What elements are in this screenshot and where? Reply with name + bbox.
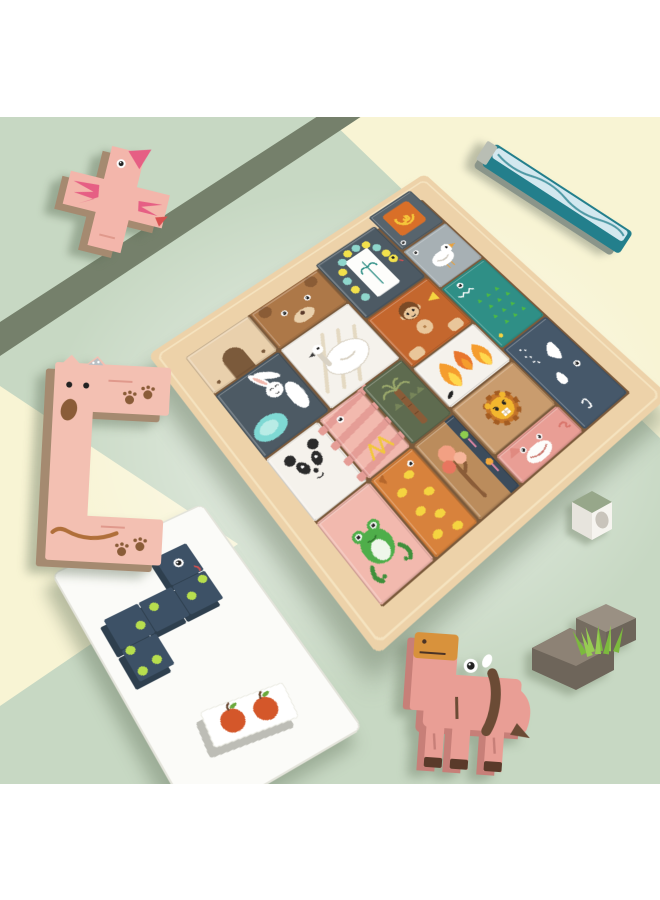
horse-muzzle	[413, 632, 459, 661]
white-border-top	[0, 0, 660, 117]
product-photo-stage	[0, 0, 660, 900]
bird-top	[54, 138, 178, 262]
white-border-bottom	[0, 784, 660, 900]
dog-block	[2, 352, 183, 581]
egg-cube	[564, 486, 622, 544]
rock-grass-block	[518, 596, 648, 701]
